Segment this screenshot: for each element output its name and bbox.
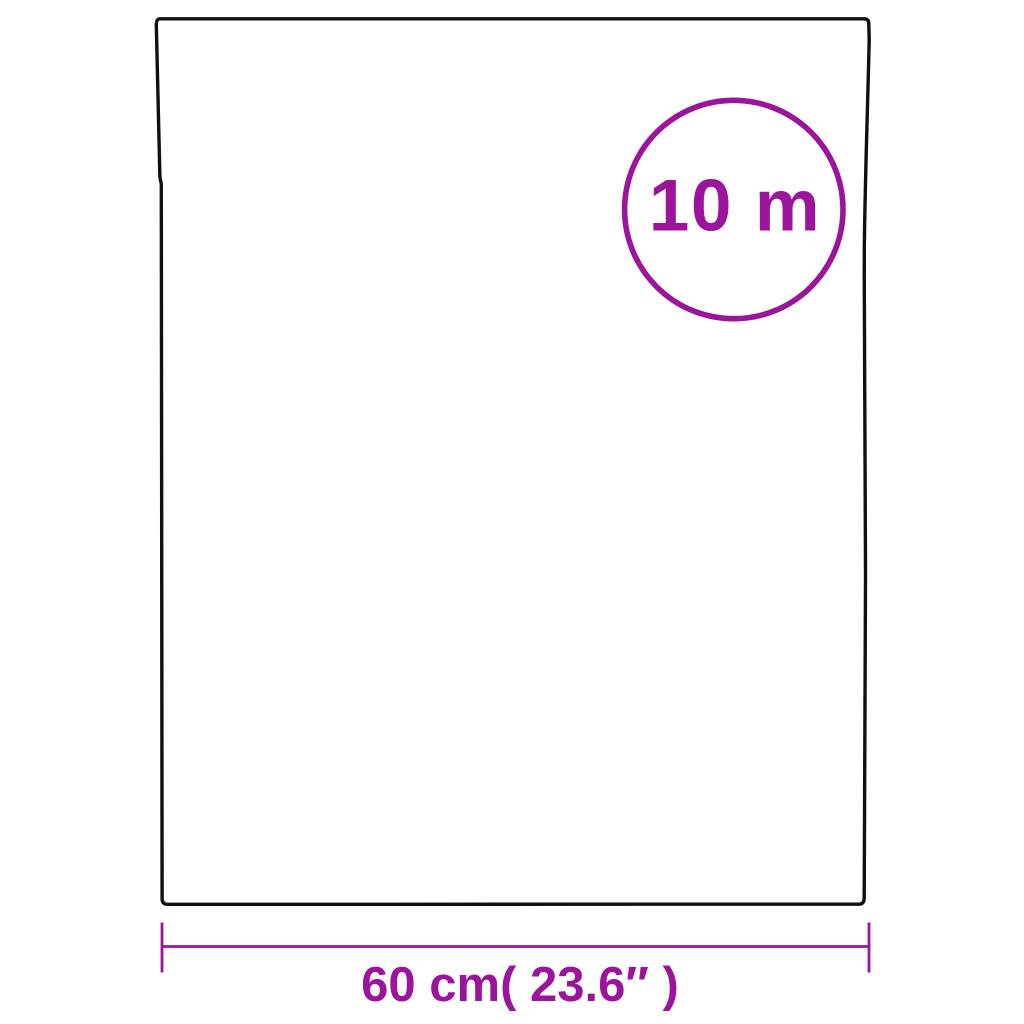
svg-text:10 m: 10 m bbox=[649, 166, 821, 247]
svg-text:60 cm( 23.6″ ): 60 cm( 23.6″ ) bbox=[361, 958, 679, 1012]
